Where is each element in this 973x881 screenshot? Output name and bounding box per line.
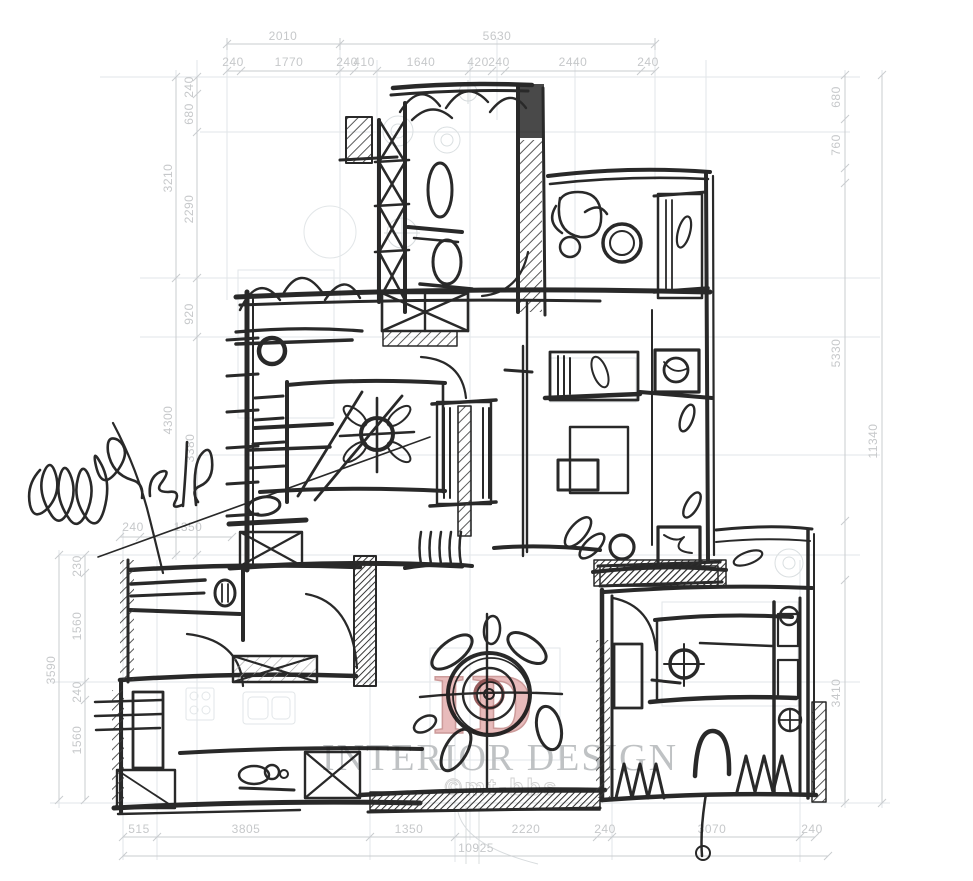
dimension-label: 1350 [395,822,424,836]
basin-circle [603,224,641,262]
dimension-label: 230 [70,555,84,577]
signature [29,423,430,573]
dimension-label: 2440 [559,55,588,69]
dimension-label: 2010 [269,29,298,43]
shelf-unit [545,352,640,400]
wardrobe-panel [654,192,708,298]
wardrobe-zigzag [616,764,664,798]
dimension-label: 240 [182,76,196,98]
dimension-label: 5630 [483,29,512,43]
dimension-label: 2290 [182,195,196,224]
annotation-stroke [113,423,163,573]
dimension-label: 240 [222,55,244,69]
signature-year [150,471,182,507]
washbasin-box [655,350,699,392]
dimension-label: 1560 [70,726,84,755]
dimension-label: 240 [637,55,659,69]
arch-stroke [695,731,729,776]
corridor [458,346,600,556]
room-mid-left [227,278,496,570]
dimension-label: 1770 [275,55,304,69]
dimension-label: 1350 [174,520,203,534]
dimension-label: 515 [128,822,150,836]
dimension-label: 680 [182,103,196,125]
dimension-label: 240 [801,822,823,836]
cad-crosshair-symbol [384,80,480,251]
dimension-label: 2220 [512,822,541,836]
dimension-label: 4300 [161,406,175,435]
dimension-label: 760 [829,134,843,156]
floor-plan-sketch-svg: 2010 5630 240 1770 240 410 1640 420 240 … [0,0,973,881]
dimension-label: 920 [182,303,196,325]
bedroom-lower-right [593,560,826,860]
dimension-label: 1560 [70,612,84,641]
dimension-label: 240 [594,822,616,836]
wall-mid-band [236,290,710,346]
room-top-right [548,170,714,560]
dimension-label: 410 [353,55,375,69]
dimension-label: 3805 [232,822,261,836]
bathroom-lower-left [120,556,376,686]
room-mid-right [527,302,722,586]
dimension-label: 240 [122,520,144,534]
dimension-label: 11340 [866,424,880,459]
dimension-label: 240 [488,55,510,69]
cad-stove-symbol [186,688,214,720]
door-arc [613,598,656,650]
toilet-fixture [552,192,607,237]
dimension-label: 420 [467,55,489,69]
floor-plan-canvas: 2010 5630 240 1770 240 410 1640 420 240 … [0,0,973,881]
wardrobe-zigzag [737,756,791,792]
dimension-label: 1640 [407,55,436,69]
dimension-label: 3590 [44,656,58,685]
plant-arcs [236,278,362,344]
cad-sink-symbol [243,692,295,724]
dimension-label: 5330 [829,339,843,368]
dimension-label: 10925 [458,841,494,855]
dimension-label: 240 [70,681,84,703]
fridge [133,692,163,768]
room-top-centre [340,84,545,315]
dimension-label: 3410 [829,679,843,708]
dimension-label: 680 [829,86,843,108]
balcony-plants [400,91,526,120]
dimension-label: 3210 [161,164,175,193]
